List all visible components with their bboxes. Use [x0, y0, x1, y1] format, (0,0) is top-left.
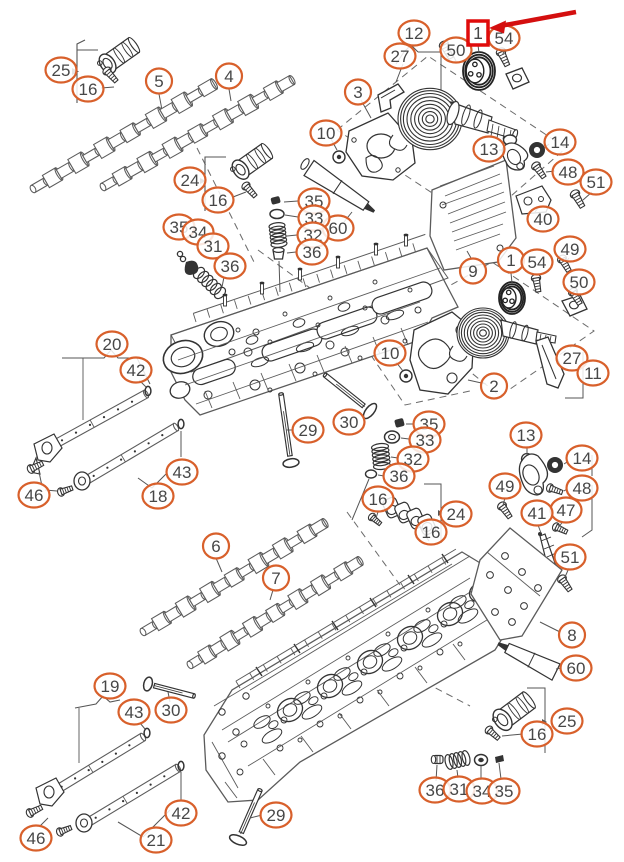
svg-text:35: 35: [495, 782, 514, 801]
svg-text:51: 51: [561, 548, 580, 567]
svg-text:60: 60: [567, 659, 586, 678]
svg-text:27: 27: [563, 349, 582, 368]
svg-text:14: 14: [573, 449, 592, 468]
svg-text:49: 49: [496, 477, 515, 496]
svg-text:46: 46: [27, 829, 46, 848]
svg-text:41: 41: [528, 504, 547, 523]
svg-text:30: 30: [340, 413, 359, 432]
svg-text:27: 27: [391, 47, 410, 66]
svg-text:48: 48: [573, 479, 592, 498]
svg-text:25: 25: [52, 61, 71, 80]
svg-text:12: 12: [405, 24, 424, 43]
svg-text:10: 10: [381, 344, 400, 363]
svg-text:18: 18: [149, 487, 168, 506]
svg-text:16: 16: [209, 191, 228, 210]
svg-text:48: 48: [559, 163, 578, 182]
svg-text:47: 47: [557, 501, 576, 520]
svg-text:13: 13: [480, 140, 499, 159]
svg-text:50: 50: [447, 41, 466, 60]
svg-text:16: 16: [528, 725, 547, 744]
svg-text:30: 30: [162, 701, 181, 720]
svg-text:51: 51: [587, 173, 606, 192]
svg-text:6: 6: [211, 537, 220, 556]
svg-text:36: 36: [303, 243, 322, 262]
svg-text:60: 60: [329, 219, 348, 238]
svg-text:2: 2: [489, 377, 498, 396]
svg-text:29: 29: [299, 421, 318, 440]
svg-text:29: 29: [267, 806, 286, 825]
svg-text:11: 11: [584, 364, 602, 383]
svg-text:50: 50: [570, 273, 589, 292]
svg-text:42: 42: [127, 361, 146, 380]
svg-text:49: 49: [561, 240, 580, 259]
svg-text:1: 1: [506, 251, 515, 270]
svg-text:8: 8: [567, 626, 576, 645]
svg-text:1: 1: [473, 23, 483, 43]
svg-text:16: 16: [369, 490, 388, 509]
svg-text:46: 46: [25, 486, 44, 505]
svg-text:7: 7: [271, 569, 280, 588]
svg-text:19: 19: [101, 677, 120, 696]
svg-text:10: 10: [317, 124, 336, 143]
svg-text:5: 5: [154, 72, 163, 91]
svg-text:25: 25: [558, 712, 577, 731]
svg-text:21: 21: [147, 831, 166, 850]
svg-text:9: 9: [468, 262, 477, 281]
svg-text:36: 36: [390, 467, 409, 486]
svg-text:14: 14: [551, 133, 570, 152]
svg-text:4: 4: [224, 67, 233, 86]
svg-text:31: 31: [204, 237, 223, 256]
svg-text:16: 16: [422, 523, 441, 542]
svg-text:43: 43: [173, 463, 192, 482]
svg-text:36: 36: [221, 257, 240, 276]
svg-text:36: 36: [426, 781, 445, 800]
svg-text:43: 43: [125, 703, 144, 722]
svg-text:16: 16: [79, 80, 98, 99]
svg-text:40: 40: [534, 210, 553, 229]
svg-text:54: 54: [528, 253, 547, 272]
svg-text:20: 20: [103, 335, 122, 354]
svg-text:3: 3: [353, 83, 362, 102]
svg-text:24: 24: [447, 505, 466, 524]
svg-text:24: 24: [181, 171, 200, 190]
svg-text:13: 13: [517, 426, 536, 445]
svg-text:42: 42: [172, 804, 191, 823]
